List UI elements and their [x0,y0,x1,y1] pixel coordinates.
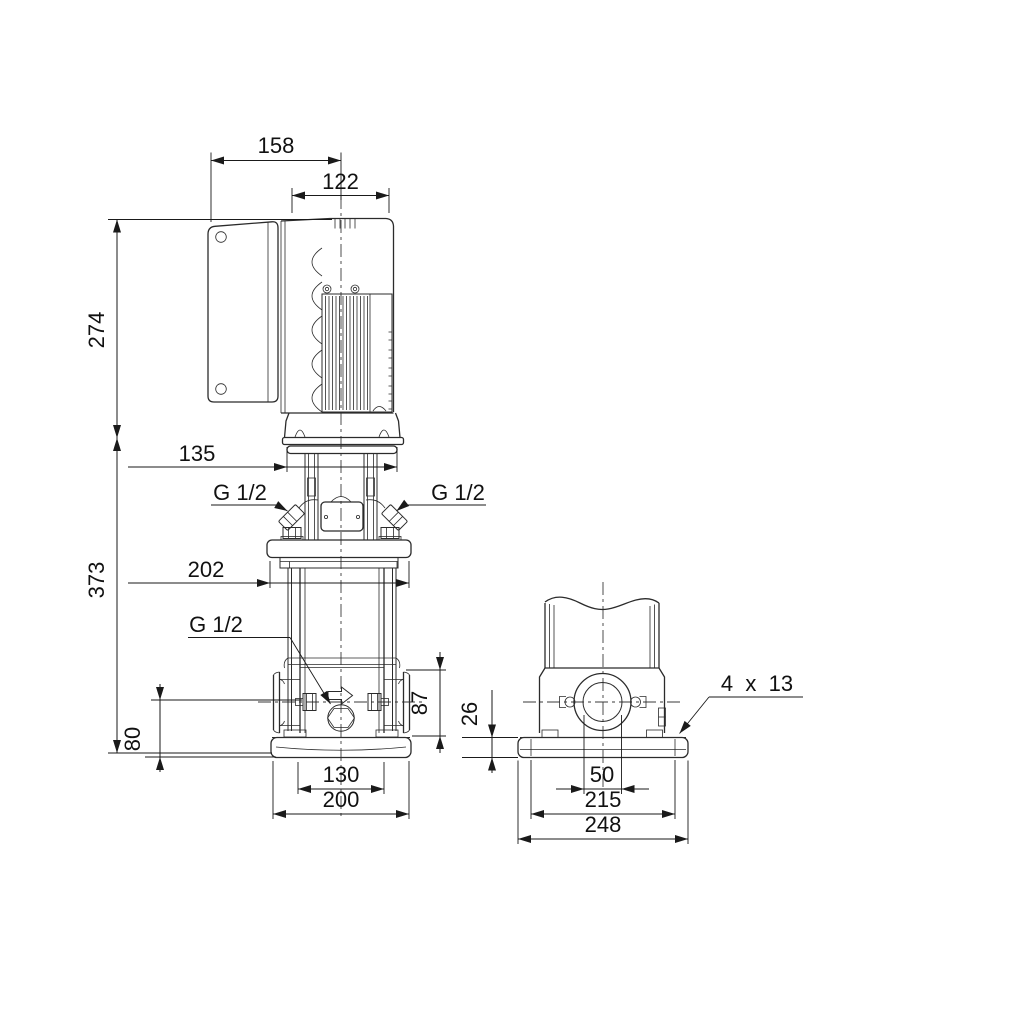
dim-port-center-height: 80 [120,727,145,751]
dim-base-width: 200 [323,787,360,812]
dim-port-bore: 50 [590,762,614,787]
technical-drawing: 158 122 274 373 135 G 1/2 G 1/2 [0,0,1024,1024]
coupling-guard [299,454,385,541]
gauge-plug-right [381,504,407,530]
drawing-page: 158 122 274 373 135 G 1/2 G 1/2 [0,0,1024,1024]
label-drain-port: G 1/2 [189,612,243,637]
port-flange-right [384,672,410,733]
side-view: 26 4 x 13 50 215 248 [457,582,803,844]
dim-motor-height: 274 [84,312,109,349]
motor-flange [283,413,404,454]
centerlines-front [258,196,424,818]
sleeve-side [540,597,666,733]
staybolts [288,568,396,731]
motor-body [281,219,394,414]
dim-head-flange-width: 202 [188,557,225,582]
flow-direction-arrow [328,687,353,704]
dim-motor-width: 122 [322,169,359,194]
coupling [321,497,363,532]
dim-motor-flange-width: 135 [179,441,216,466]
control-box [208,222,278,402]
front-view: 158 122 274 373 135 G 1/2 G 1/2 [84,133,486,819]
break-line [545,597,659,609]
dim-base-thickness: 26 [457,702,482,726]
dim-base-depth: 248 [585,812,622,837]
dim-pump-height: 373 [84,562,109,599]
dim-total-width: 158 [258,133,295,158]
head-flange [267,540,411,558]
cooling-fins [322,294,392,412]
label-gauge-port-right: G 1/2 [431,480,485,505]
mounting-hole-top [216,232,227,243]
vent-slots [295,430,389,437]
dim-bolt-hole-span: 215 [585,787,622,812]
mounting-hole-bottom [216,384,227,395]
label-base-holes: 4 x 13 [721,671,793,696]
gland-cover-bumps [312,248,322,412]
label-gauge-port-left: G 1/2 [213,480,267,505]
dim-port-face-height: 87 [407,691,432,715]
port-block [274,672,410,733]
pump-head [267,504,411,568]
dim-foot-hole-span: 130 [323,762,360,787]
port-flange-left [274,672,301,733]
